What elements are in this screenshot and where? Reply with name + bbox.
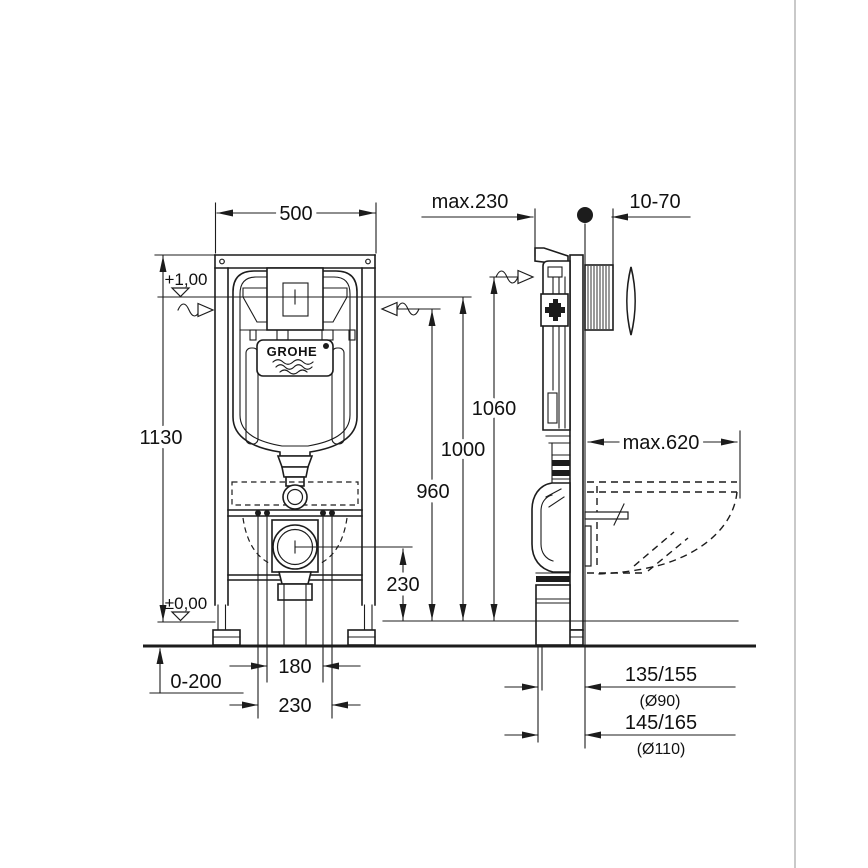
dim-135-155-label: 135/155 [625, 664, 697, 686]
dim-230-outlet-label: 230 [386, 574, 419, 596]
dim-frame-depth: max.230 [422, 191, 535, 256]
dim-plate-offset: 10-70 [612, 191, 690, 268]
dim-0-200-label: 0-200 [170, 671, 221, 693]
actuator-housing-hatched [585, 265, 613, 330]
wc-bowl-dashed [587, 482, 737, 574]
level-triangle [172, 288, 189, 297]
dim-max230-label: max.230 [432, 191, 509, 213]
front-view: GROHE [213, 255, 375, 645]
frame-corner-screw [220, 259, 225, 264]
bowl-fixing-stud [585, 512, 628, 519]
cistern-side [543, 261, 570, 443]
dim-height-1000: 1000 [441, 298, 486, 620]
dim-drain-110: 145/165 (Ø110) [505, 712, 735, 758]
dim-180-label: 180 [278, 656, 311, 678]
dim-dia110-label: (Ø110) [637, 741, 686, 758]
frame-corner-screw [366, 259, 371, 264]
dim-drain-90: 135/155 (Ø90) [505, 664, 735, 710]
grohe-logo-plate: GROHE [257, 340, 333, 376]
wall-fixing-bolt [541, 294, 568, 326]
dim-max620-label: max.620 [623, 432, 700, 454]
flush-plate-side [627, 267, 635, 335]
level-floor-label: ±0,00 [165, 594, 207, 613]
dim-960-label: 960 [416, 481, 449, 503]
side-rail [570, 255, 583, 630]
installation-drawing-page: GROHE [0, 0, 868, 868]
wavy-arrow-left [178, 304, 213, 317]
flush-pipe-side [552, 443, 570, 483]
dim-floor-adjust: 0-200 [150, 648, 243, 693]
drain-below-floor [538, 646, 542, 742]
dim-145-165-label: 145/165 [625, 712, 697, 734]
wall-reference-dot [577, 207, 593, 223]
grohe-logo-text: GROHE [267, 344, 318, 359]
dim-230-bottom-label: 230 [278, 695, 311, 717]
inlet-connector-inner [288, 490, 303, 505]
dim-front-width: 500 [216, 203, 377, 253]
bowl-bracket [585, 526, 591, 566]
dim-1000-label: 1000 [441, 439, 486, 461]
level-marker-floor: ±0,00 [165, 594, 207, 621]
actuator-opening [267, 268, 323, 330]
dim-height-960: 960 [416, 310, 449, 620]
level-upper-label: +1,00 [164, 270, 207, 289]
dim-dia90-label: (Ø90) [640, 693, 681, 710]
dim-10-70-label: 10-70 [629, 191, 680, 213]
dim-bowl-depth: max.620 [588, 431, 740, 498]
drain-pipe-down [536, 585, 570, 645]
fixing-bolts [255, 510, 335, 516]
outlet-assembly [272, 520, 318, 645]
installation-drawing: GROHE [0, 0, 868, 868]
level-triangle [172, 612, 189, 621]
dim-500-label: 500 [279, 203, 312, 225]
dim-1060-label: 1060 [472, 398, 517, 420]
dim-1130-label: 1130 [139, 427, 182, 449]
wavy-arrow-side [490, 271, 533, 284]
registered-mark-dot [323, 343, 329, 349]
